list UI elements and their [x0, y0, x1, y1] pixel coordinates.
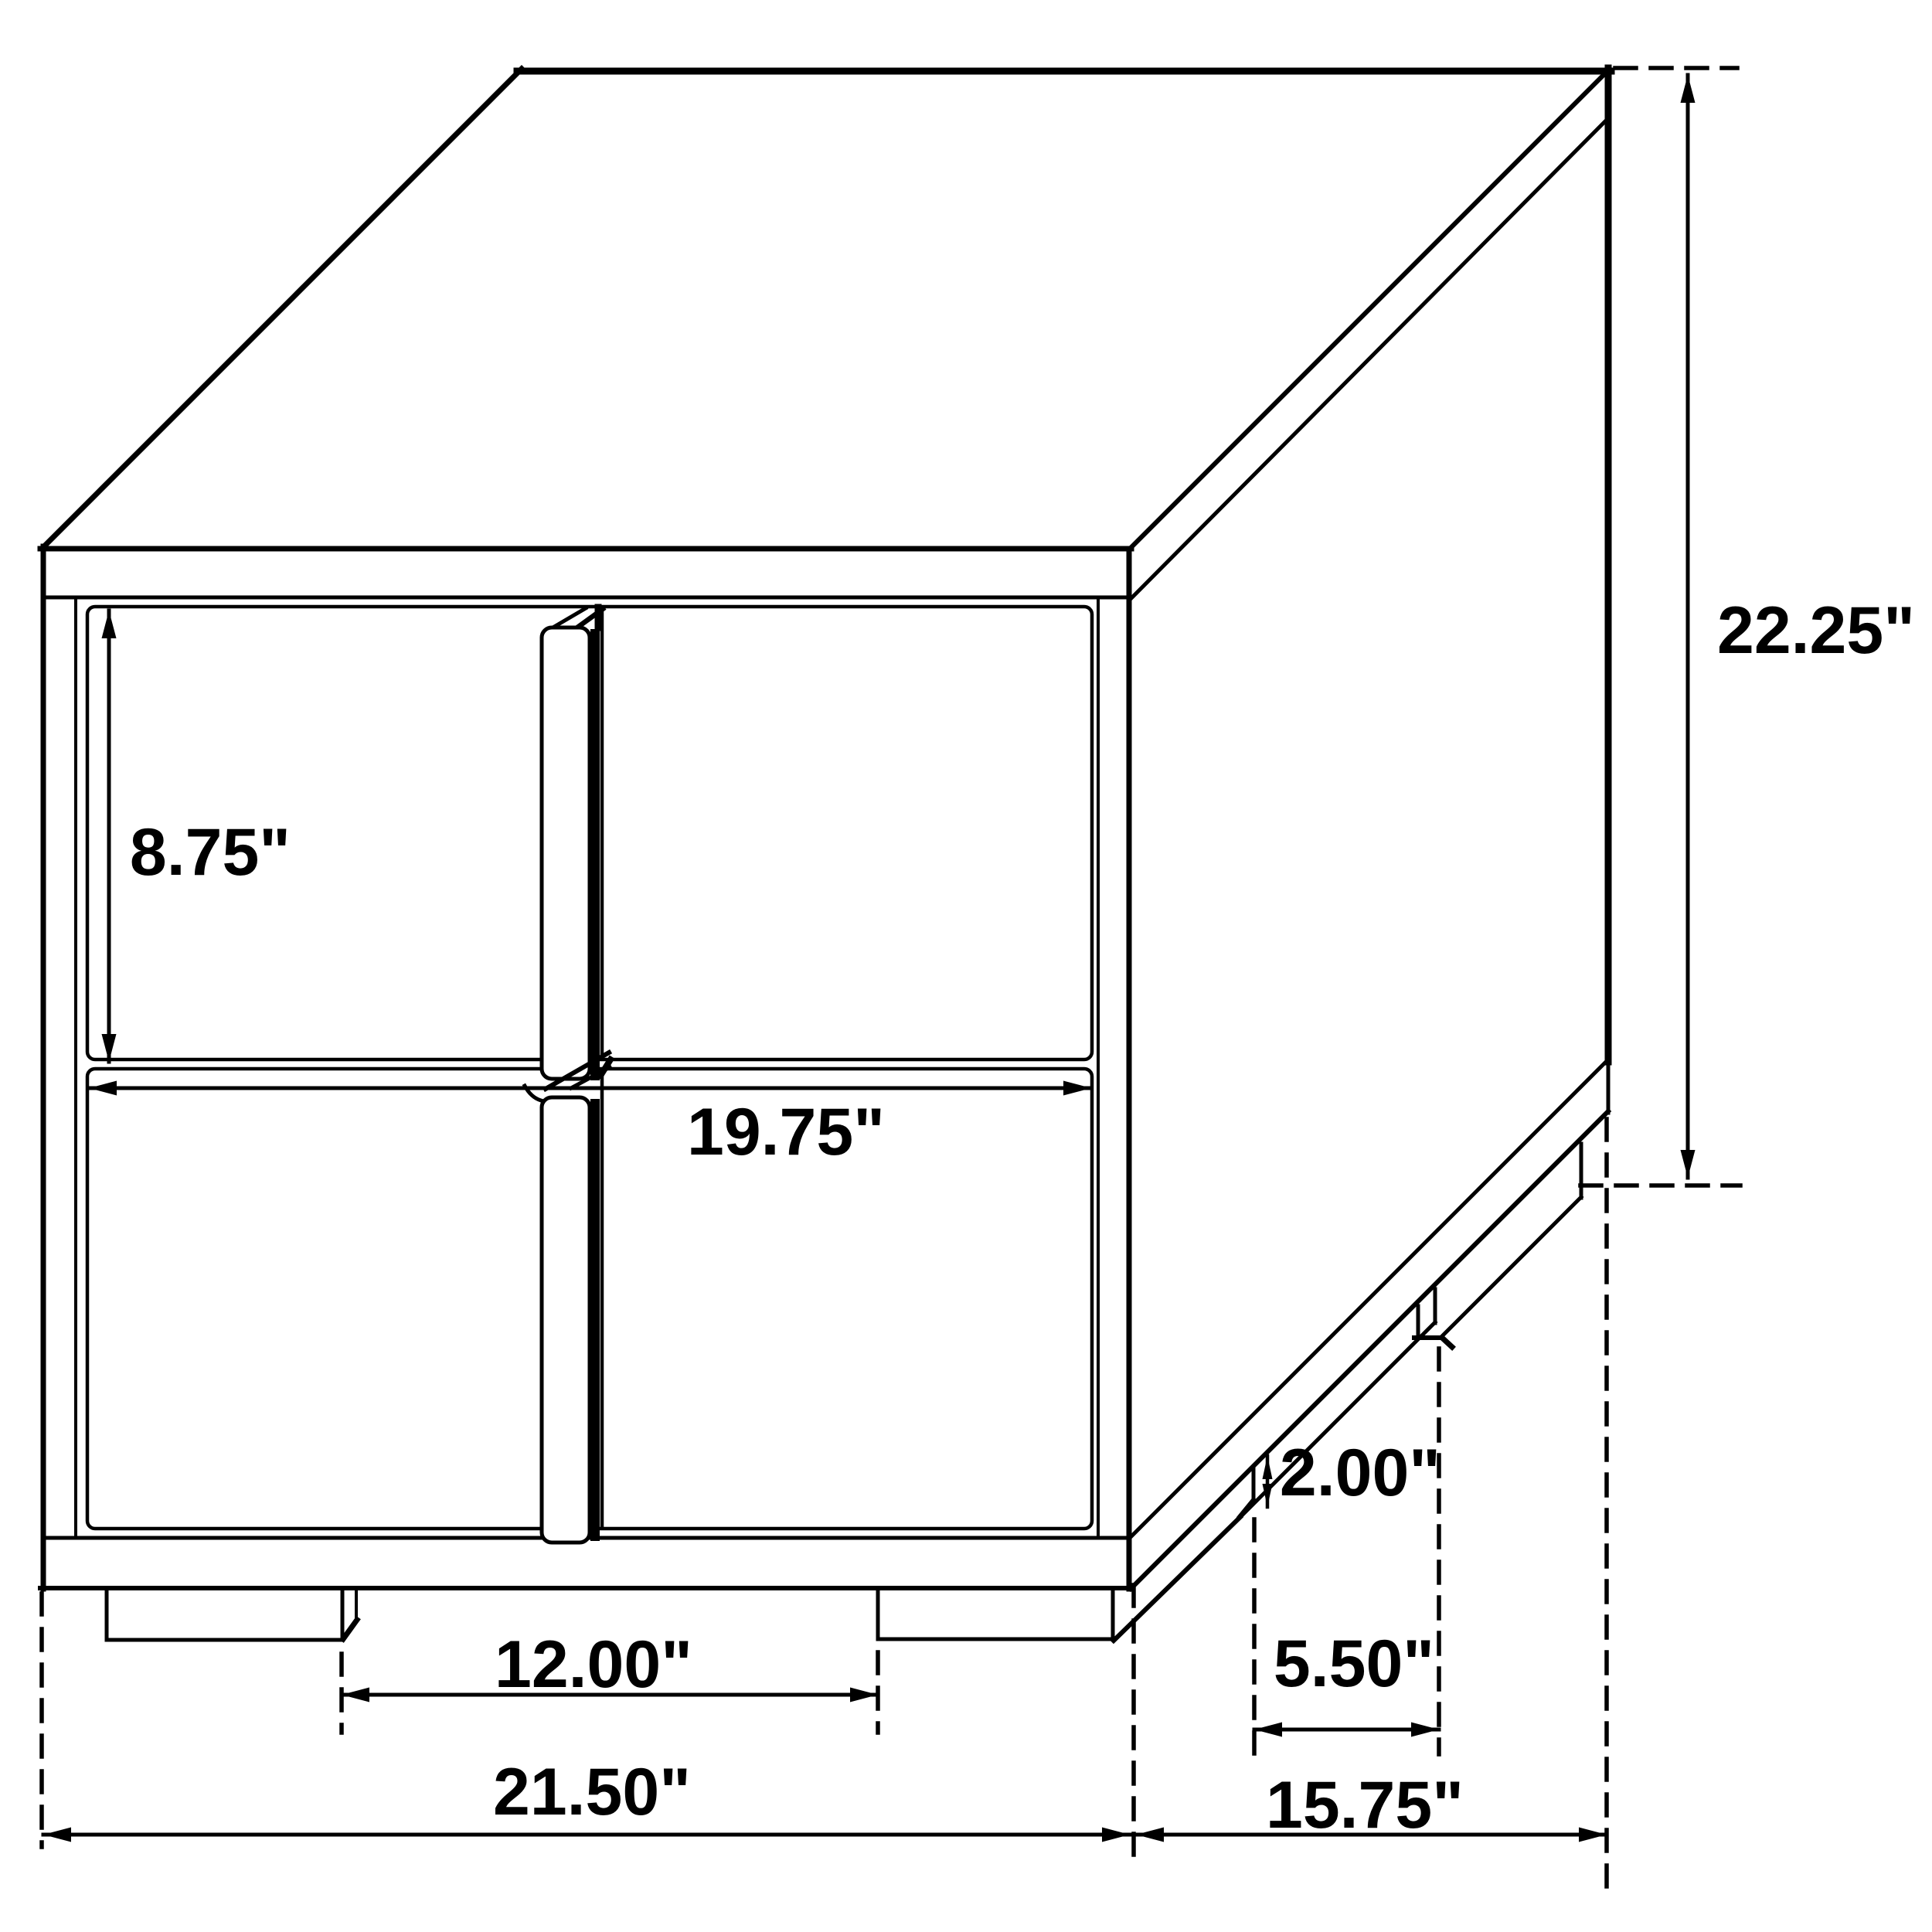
svg-text:12.00": 12.00" — [495, 1628, 692, 1702]
svg-text:22.25": 22.25" — [1717, 594, 1915, 668]
svg-text:5.50": 5.50" — [1274, 1627, 1434, 1701]
svg-text:21.50": 21.50" — [493, 1755, 691, 1829]
svg-text:19.75": 19.75" — [687, 1095, 885, 1169]
svg-text:2.00": 2.00" — [1280, 1436, 1440, 1510]
svg-text:8.75": 8.75" — [130, 815, 291, 889]
svg-text:15.75": 15.75" — [1266, 1768, 1464, 1842]
